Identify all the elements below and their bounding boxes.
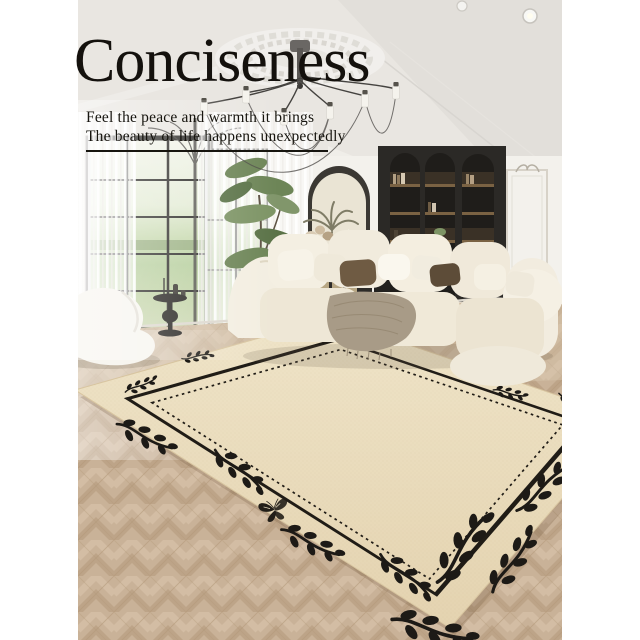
tagline-line-1: Feel the peace and warmth it brings xyxy=(86,110,314,126)
dark-brown-pillow xyxy=(429,262,461,287)
living-room-photo xyxy=(78,0,562,640)
title-underline xyxy=(86,150,328,152)
brown-pillow xyxy=(339,259,377,287)
tagline-line-2: The beauty of life happens unexpectedly xyxy=(86,129,346,145)
hero-title: Conciseness xyxy=(74,30,370,92)
living-room-scene xyxy=(78,0,562,640)
product-image-page: Conciseness Feel the peace and warmth it… xyxy=(0,0,640,640)
